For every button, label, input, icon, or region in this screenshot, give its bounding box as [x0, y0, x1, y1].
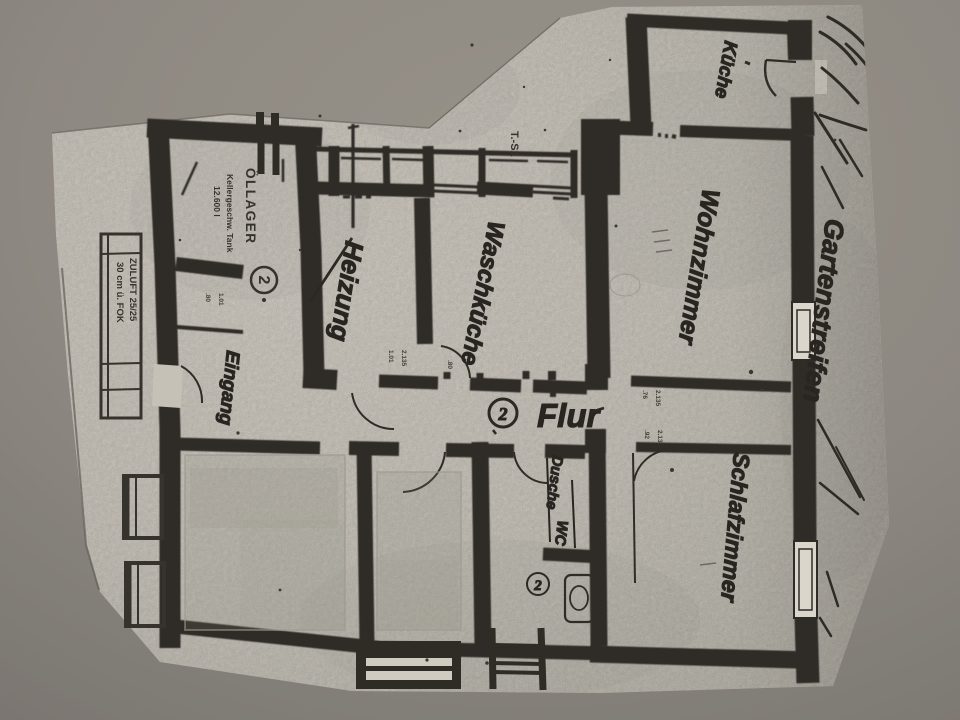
- svg-text:WC: WC: [551, 520, 571, 548]
- svg-text:.92: .92: [643, 430, 650, 439]
- svg-text:12.600 l: 12.600 l: [212, 186, 222, 217]
- svg-text:2.135: 2.135: [656, 430, 663, 447]
- svg-text:2: 2: [533, 578, 542, 594]
- svg-text:1.01: 1.01: [217, 293, 224, 306]
- svg-text:.76: .76: [641, 390, 648, 399]
- svg-text:Flur: Flur: [537, 397, 601, 434]
- svg-text:2: 2: [498, 404, 508, 424]
- svg-text:T.-S1: T.-S1: [508, 131, 520, 157]
- svg-text:ÖLLAGER: ÖLLAGER: [243, 168, 258, 245]
- svg-text:.80: .80: [204, 293, 211, 302]
- svg-text:2: 2: [255, 276, 272, 285]
- svg-text:30 cm ü. FOK: 30 cm ü. FOK: [114, 262, 125, 323]
- svg-text:2.135: 2.135: [400, 350, 407, 367]
- svg-text:1.01: 1.01: [387, 350, 394, 363]
- svg-text:ZULUFT 25/25: ZULUFT 25/25: [127, 258, 138, 322]
- svg-text:2.135: 2.135: [654, 390, 661, 407]
- svg-text:Kellergeschw. Tank: Kellergeschw. Tank: [225, 174, 235, 253]
- svg-text:.80: .80: [446, 360, 453, 369]
